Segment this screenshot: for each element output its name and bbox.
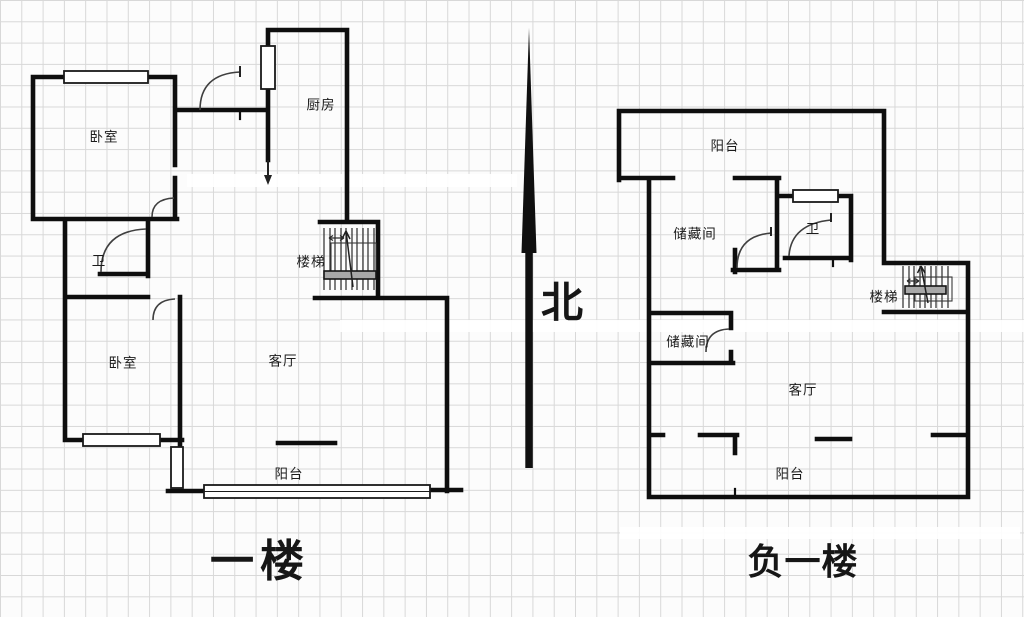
- door-arc: [737, 233, 771, 268]
- floor1-bathroom-label: 卫: [92, 254, 107, 268]
- basement-plan: [619, 111, 968, 497]
- floor1-stairs-label: 楼梯: [297, 255, 326, 269]
- floor-plan-drawing: [0, 0, 1024, 617]
- bedroom2-window-icon: [83, 434, 160, 446]
- door-arc: [153, 299, 175, 320]
- stair-width-arrow: [907, 279, 919, 283]
- north-arrow-head: [522, 28, 537, 253]
- floor1-stairs-icon: [324, 228, 376, 290]
- basement-storage1-label: 储藏间: [673, 227, 717, 241]
- wall-segments: [619, 111, 968, 497]
- floor1-kitchen-label: 厨房: [307, 98, 336, 112]
- bedroom1-window-icon: [64, 71, 148, 83]
- floor1-bedroom2-label: 卧室: [109, 356, 138, 370]
- basement-walls: [619, 111, 968, 497]
- floor1-bedroom1-label: 卧室: [90, 130, 119, 144]
- north-label: 北: [541, 283, 583, 325]
- bathroom-window-icon: [793, 190, 838, 202]
- streak: [620, 527, 1020, 539]
- door-arc: [101, 229, 146, 272]
- stair-direction-line: [918, 266, 929, 303]
- basement-stairs-icon: [903, 266, 952, 308]
- floor1-title: 一楼: [210, 540, 310, 584]
- floor1-living-room-label: 客厅: [269, 354, 298, 368]
- streak: [340, 320, 1024, 332]
- north-arrow-icon: [522, 28, 537, 468]
- wall-ticks: [735, 258, 833, 497]
- streak: [187, 174, 517, 187]
- balcony-side-window-icon: [171, 447, 183, 488]
- basement-living-room-label: 客厅: [789, 383, 818, 397]
- basement-windows: [793, 190, 838, 202]
- basement-bathroom-label: 卫: [806, 222, 821, 236]
- north-arrow-stem: [525, 250, 533, 468]
- floor1-doors: [101, 66, 272, 320]
- basement-storage2-label: 储藏间: [666, 335, 710, 349]
- floor-plan-canvas: 卧室 厨房 卫 楼梯 卧室 客厅 阳台 一楼 北 阳台 储藏间 卫 楼梯 储藏间…: [0, 0, 1024, 617]
- basement-balcony-bottom-label: 阳台: [776, 467, 805, 481]
- basement-balcony-top-label: 阳台: [711, 139, 740, 153]
- basement-stairs-label: 楼梯: [870, 290, 899, 304]
- stair-tread-bar: [324, 271, 376, 279]
- floor1-balcony-label: 阳台: [275, 467, 304, 481]
- door-arc: [200, 72, 240, 110]
- basement-title: 负一楼: [747, 544, 858, 580]
- stair-width-arrow: [329, 236, 344, 241]
- kitchen-window-icon: [261, 46, 275, 89]
- door-arc: [152, 198, 174, 217]
